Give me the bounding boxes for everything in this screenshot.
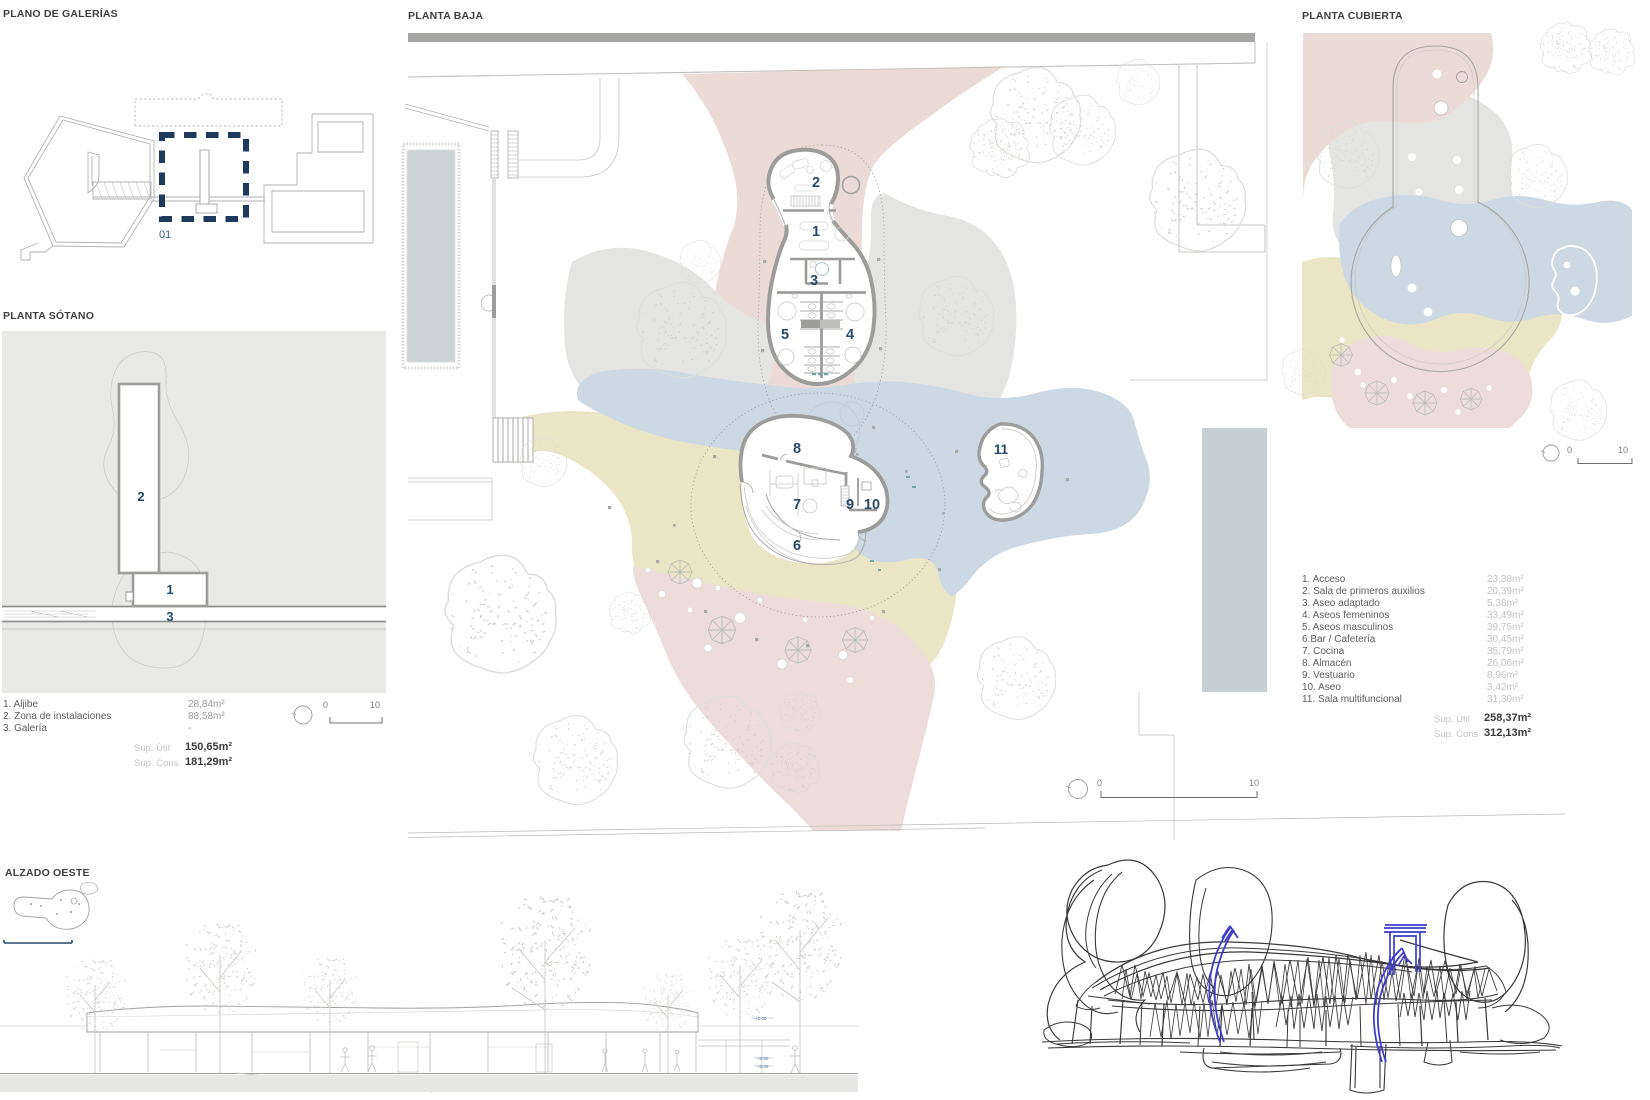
svg-text:+0.50: +0.50 [757,1056,769,1061]
svg-text:10: 10 [864,497,880,513]
svg-text:4: 4 [846,327,854,343]
svg-text:2: 2 [812,175,820,191]
svg-text:11: 11 [994,442,1009,457]
svg-text:+2.00: +2.00 [755,1016,767,1021]
svg-text:+0.00: +0.00 [757,1064,769,1069]
svg-text:7: 7 [793,497,801,513]
svg-text:6: 6 [793,538,801,554]
svg-text:1: 1 [166,582,173,597]
svg-text:9: 9 [846,497,854,513]
svg-text:1: 1 [812,224,820,240]
svg-text:2: 2 [137,489,144,504]
svg-text:3: 3 [166,609,173,624]
svg-text:5: 5 [781,327,789,343]
svg-text:3: 3 [810,273,818,289]
svg-text:8: 8 [793,441,801,457]
